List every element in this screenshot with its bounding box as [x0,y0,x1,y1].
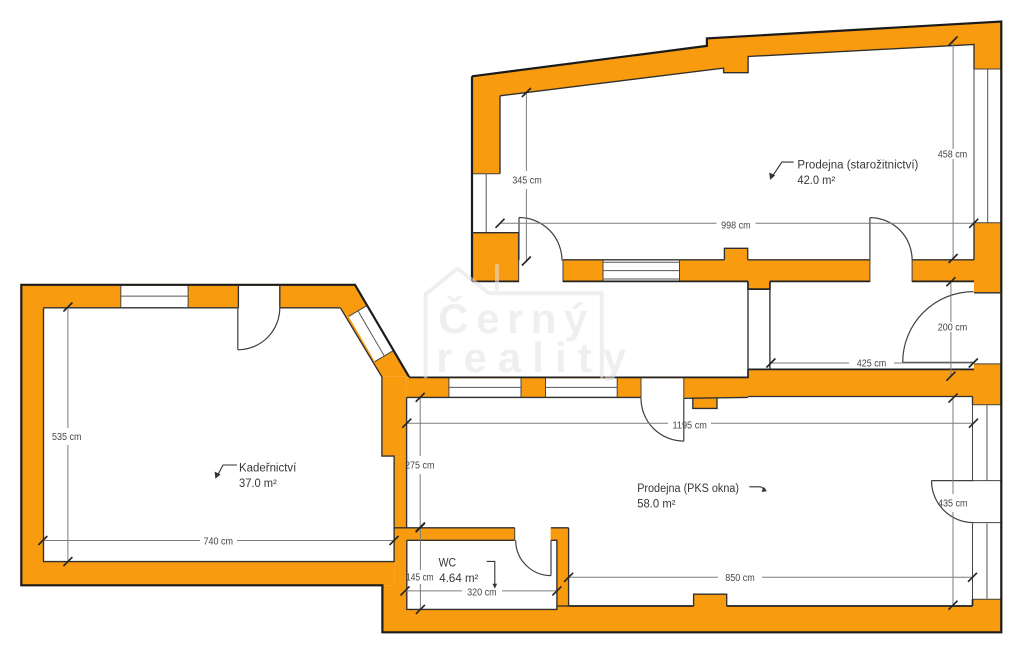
svg-text:145 cm: 145 cm [406,573,434,584]
svg-text:998 cm: 998 cm [721,221,751,232]
svg-text:37.0 m²: 37.0 m² [239,478,277,490]
svg-text:320 cm: 320 cm [467,588,497,599]
svg-text:42.0 m²: 42.0 m² [797,175,835,187]
svg-text:4.64 m²: 4.64 m² [439,573,478,585]
svg-text:58.0 m²: 58.0 m² [637,499,676,511]
svg-text:458 cm: 458 cm [938,150,968,161]
svg-text:435 cm: 435 cm [938,499,968,510]
svg-text:Prodejna (PKS okna): Prodejna (PKS okna) [637,483,739,495]
svg-text:740 cm: 740 cm [204,537,234,548]
svg-text:275 cm: 275 cm [405,461,435,472]
svg-text:WC: WC [439,558,457,570]
svg-text:Kadeřnictví: Kadeřnictví [239,463,297,475]
svg-text:850 cm: 850 cm [725,573,755,584]
svg-text:200 cm: 200 cm [938,323,968,334]
svg-text:1195 cm: 1195 cm [672,421,707,432]
svg-text:345 cm: 345 cm [512,176,542,187]
svg-text:535 cm: 535 cm [52,432,82,443]
svg-text:425 cm: 425 cm [857,359,887,370]
svg-text:Prodejna (starožitnictví): Prodejna (starožitnictví) [797,160,918,172]
